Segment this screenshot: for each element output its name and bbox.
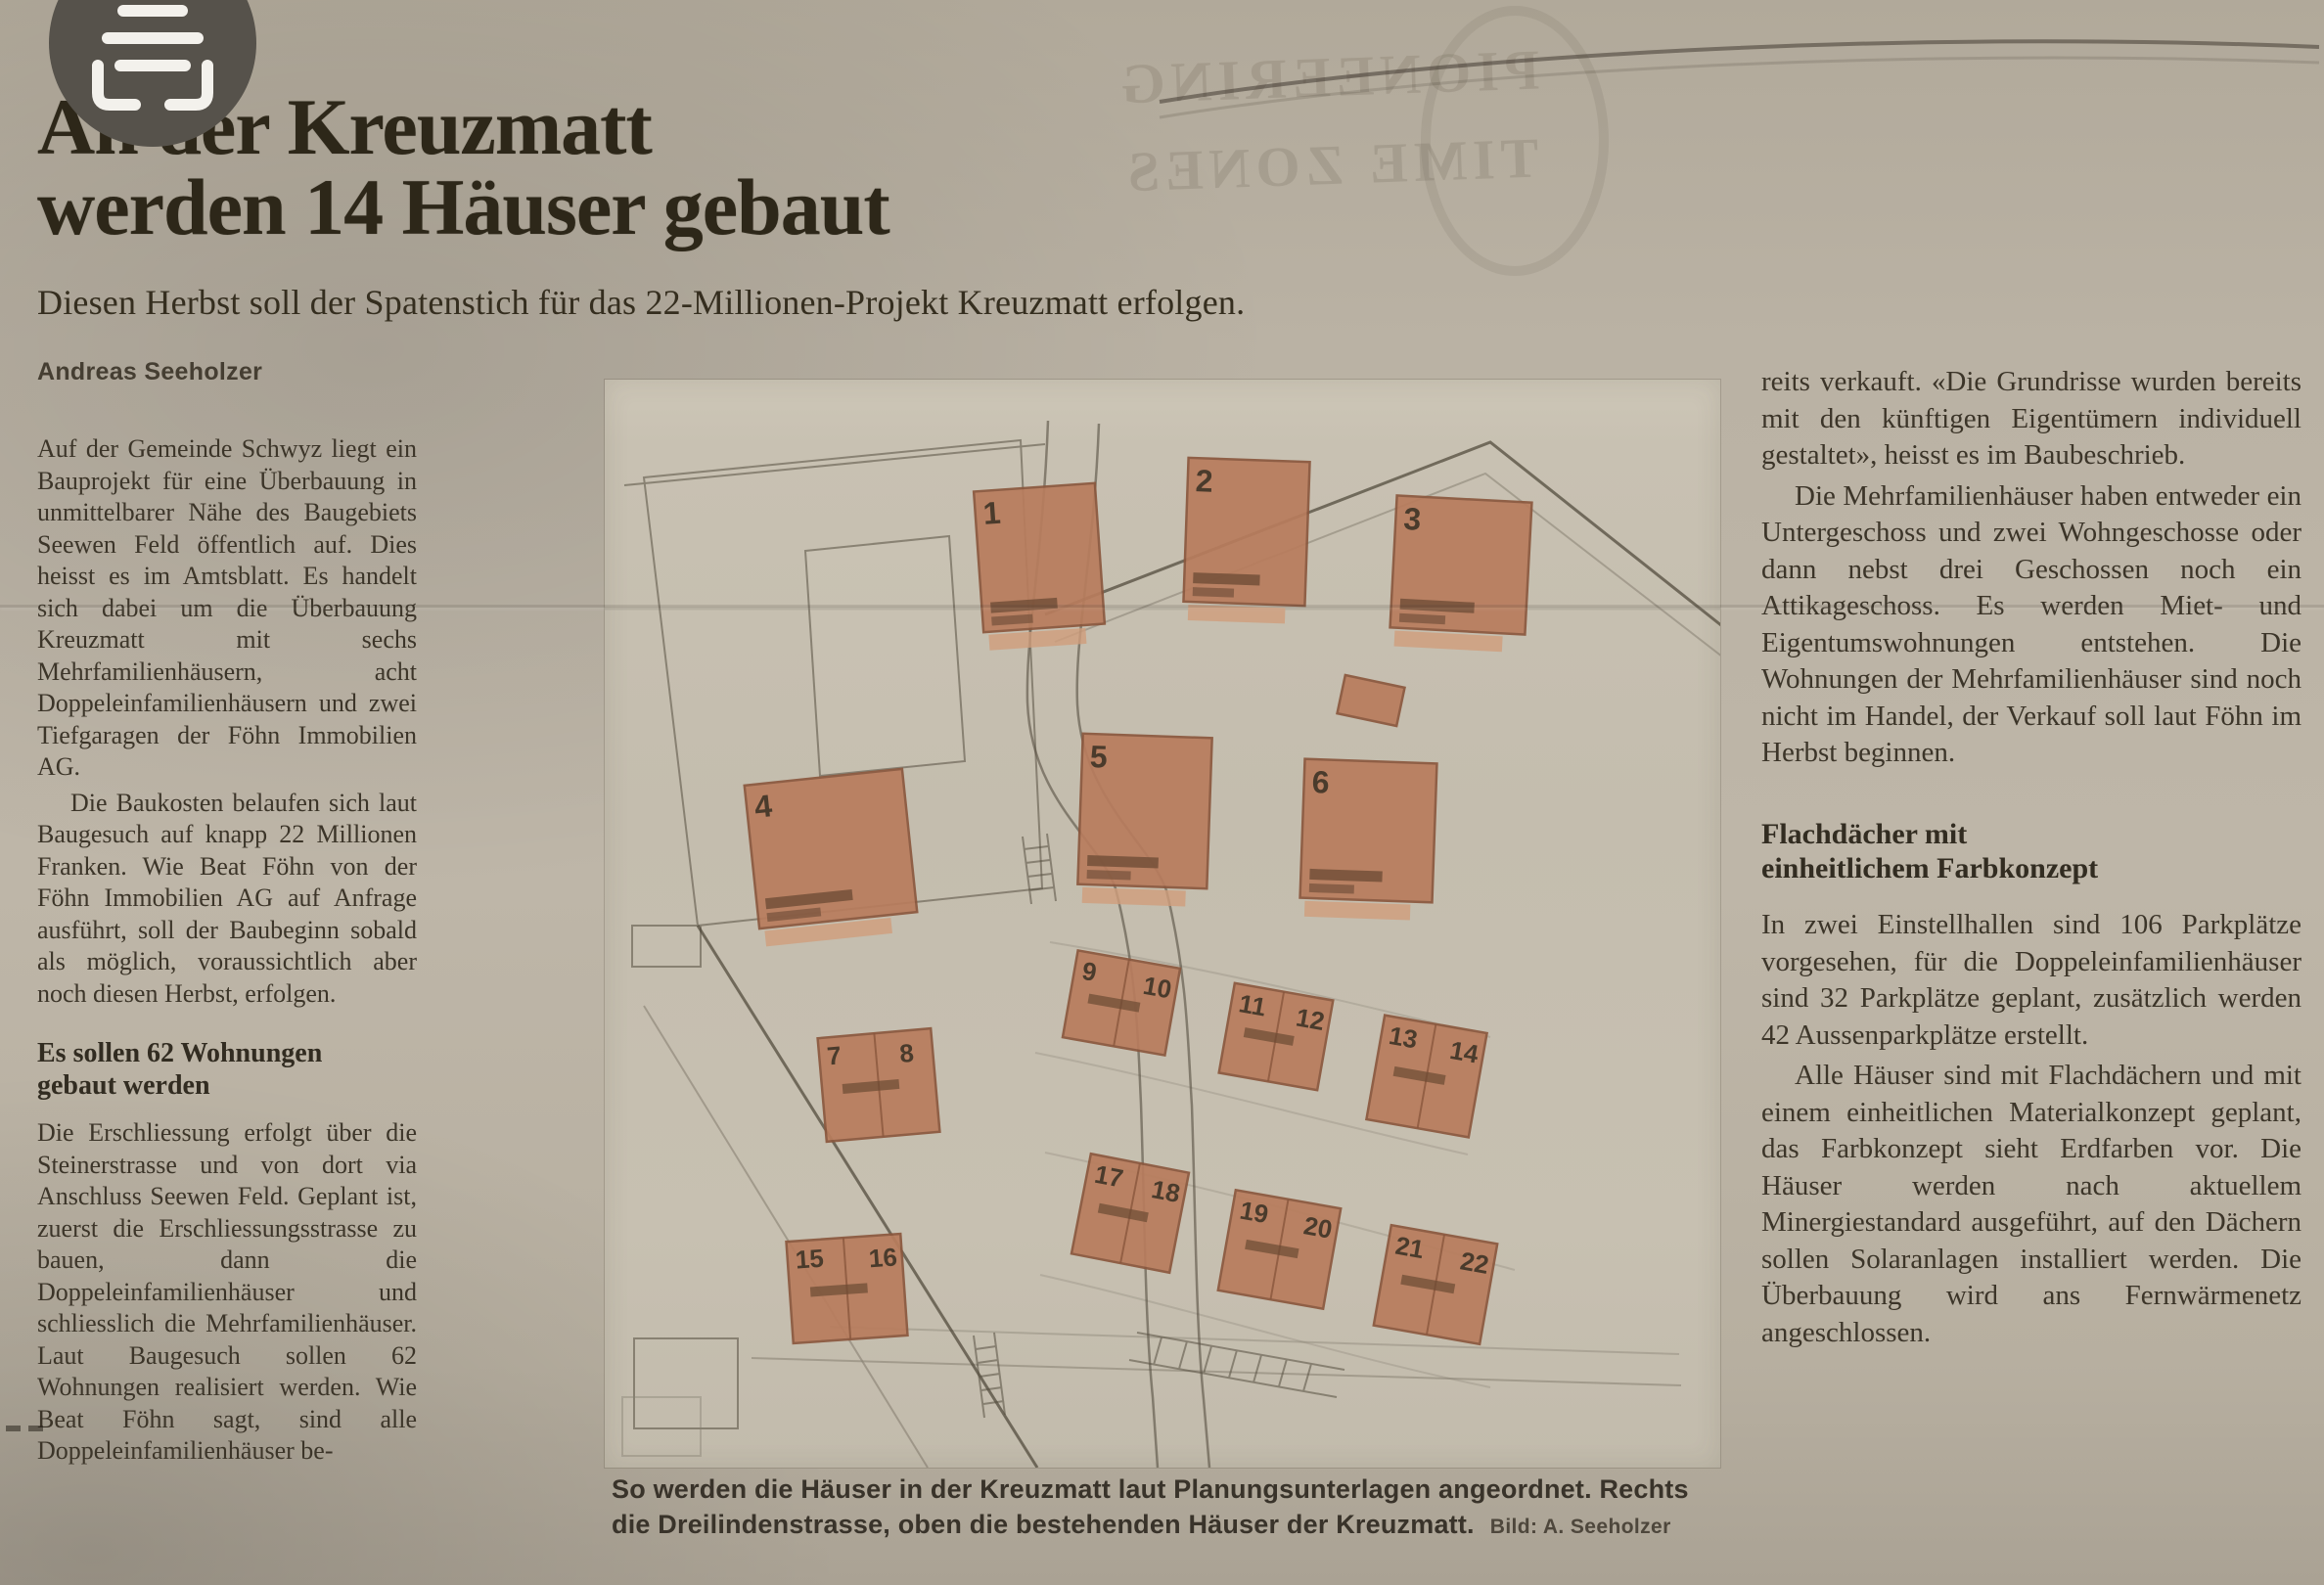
site-plan-figure: 12345678910111213141516171819202122 — [605, 380, 1720, 1468]
building-number: 7 — [826, 1040, 843, 1070]
building-number: 22 — [1458, 1245, 1491, 1280]
building-number: 16 — [868, 1242, 898, 1273]
plan-building-13-14: 1314 — [1366, 1016, 1486, 1138]
stair-symbols — [974, 834, 1344, 1418]
building-number: 6 — [1311, 764, 1330, 800]
left-column: Auf der Gemeinde Schwyz liegt ein Baupro… — [37, 433, 417, 1468]
paragraph: Die Baukosten belaufen sich laut Baugesu… — [37, 788, 417, 1011]
caption-credit: Bild: A. Seeholzer — [1490, 1516, 1671, 1538]
plan-building-6: 6 — [1299, 759, 1437, 922]
building-number: 1 — [981, 495, 1001, 531]
building-number: 2 — [1195, 463, 1213, 499]
building-number: 5 — [1089, 739, 1108, 775]
paragraph: Die Mehrfamilienhäuser haben entweder ei… — [1761, 478, 2301, 772]
plan-building-9-10: 910 — [1063, 950, 1180, 1055]
building-number: 8 — [898, 1038, 915, 1068]
building-number: 3 — [1402, 501, 1422, 537]
paragraph: reits verkauft. «Die Grundrisse wurden b… — [1761, 364, 2301, 475]
building-number: 13 — [1387, 1020, 1420, 1055]
crosshead: Es sollen 62 Wohnungen gebaut werden — [37, 1037, 417, 1102]
plan-building-2: 2 — [1183, 458, 1310, 624]
building-number: 10 — [1141, 971, 1174, 1005]
article-headline: An der Kreuzmatt werden 14 Häuser gebaut — [37, 87, 1407, 248]
right-column: reits verkauft. «Die Grundrisse wurden b… — [1761, 364, 2301, 1351]
building-number: 11 — [1237, 988, 1268, 1021]
building-number: 20 — [1301, 1210, 1335, 1245]
plan-building-1: 1 — [974, 483, 1106, 651]
margin-marks — [6, 1419, 57, 1426]
crosshead: Flachdächer mit einheitlichem Farbkonzep… — [1761, 817, 2301, 886]
newspaper-photo: PIONEERING TIME ZONES An der Kreuzmatt w… — [0, 0, 2324, 1585]
plan-caption: So werden die Häuser in der Kreuzmatt la… — [612, 1472, 1722, 1545]
paragraph: In zwei Einstellhallen sind 106 Parkplät… — [1761, 907, 2301, 1054]
page-crease-line — [0, 605, 2324, 608]
site-plan-drawing: 12345678910111213141516171819202122 — [605, 380, 1720, 1468]
plan-building-19-20: 1920 — [1218, 1190, 1341, 1308]
paragraph: Auf der Gemeinde Schwyz liegt ein Baupro… — [37, 433, 417, 784]
plan-building-7-8: 78 — [818, 1028, 940, 1142]
plan-building-15-16: 1516 — [787, 1234, 908, 1343]
plan-outbuilding — [1338, 675, 1405, 726]
plan-building-5: 5 — [1077, 734, 1212, 908]
building-number: 14 — [1447, 1035, 1481, 1069]
article-byline: Andreas Seeholzer — [37, 358, 429, 386]
building-number: 12 — [1294, 1003, 1327, 1037]
plan-building-3: 3 — [1390, 495, 1532, 653]
building-number: 15 — [795, 1244, 825, 1275]
building-number: 21 — [1393, 1231, 1427, 1265]
paragraph: Alle Häuser sind mit Flachdächern und mi… — [1761, 1058, 2301, 1351]
plan-building-21-22: 2122 — [1374, 1225, 1497, 1344]
building-number: 18 — [1149, 1174, 1182, 1208]
paragraph: Die Erschliessung erfolgt über die Stein… — [37, 1117, 417, 1468]
plan-building-4: 4 — [745, 769, 919, 947]
article-deck: Diesen Herbst soll der Spatenstich für d… — [37, 282, 1681, 323]
plan-building-17-18: 1718 — [1071, 1154, 1189, 1273]
building-number: 17 — [1092, 1159, 1125, 1194]
text-scan-icon — [88, 3, 217, 118]
building-number: 19 — [1238, 1196, 1271, 1230]
plan-building-11-12: 1112 — [1219, 983, 1334, 1090]
